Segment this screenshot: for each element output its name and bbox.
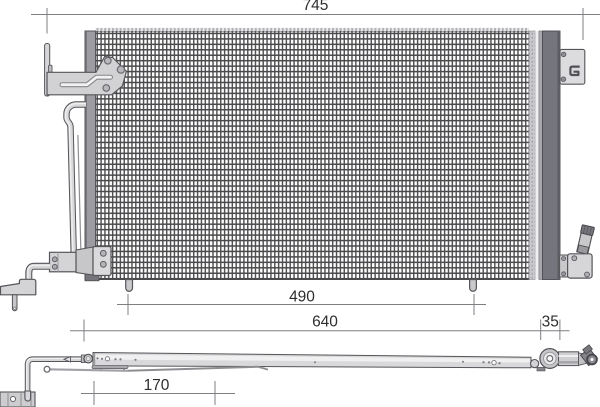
svg-text:35: 35 xyxy=(542,314,559,331)
svg-text:640: 640 xyxy=(312,314,338,331)
svg-text:170: 170 xyxy=(144,377,170,394)
svg-text:490: 490 xyxy=(289,289,315,306)
svg-text:745: 745 xyxy=(303,0,329,14)
